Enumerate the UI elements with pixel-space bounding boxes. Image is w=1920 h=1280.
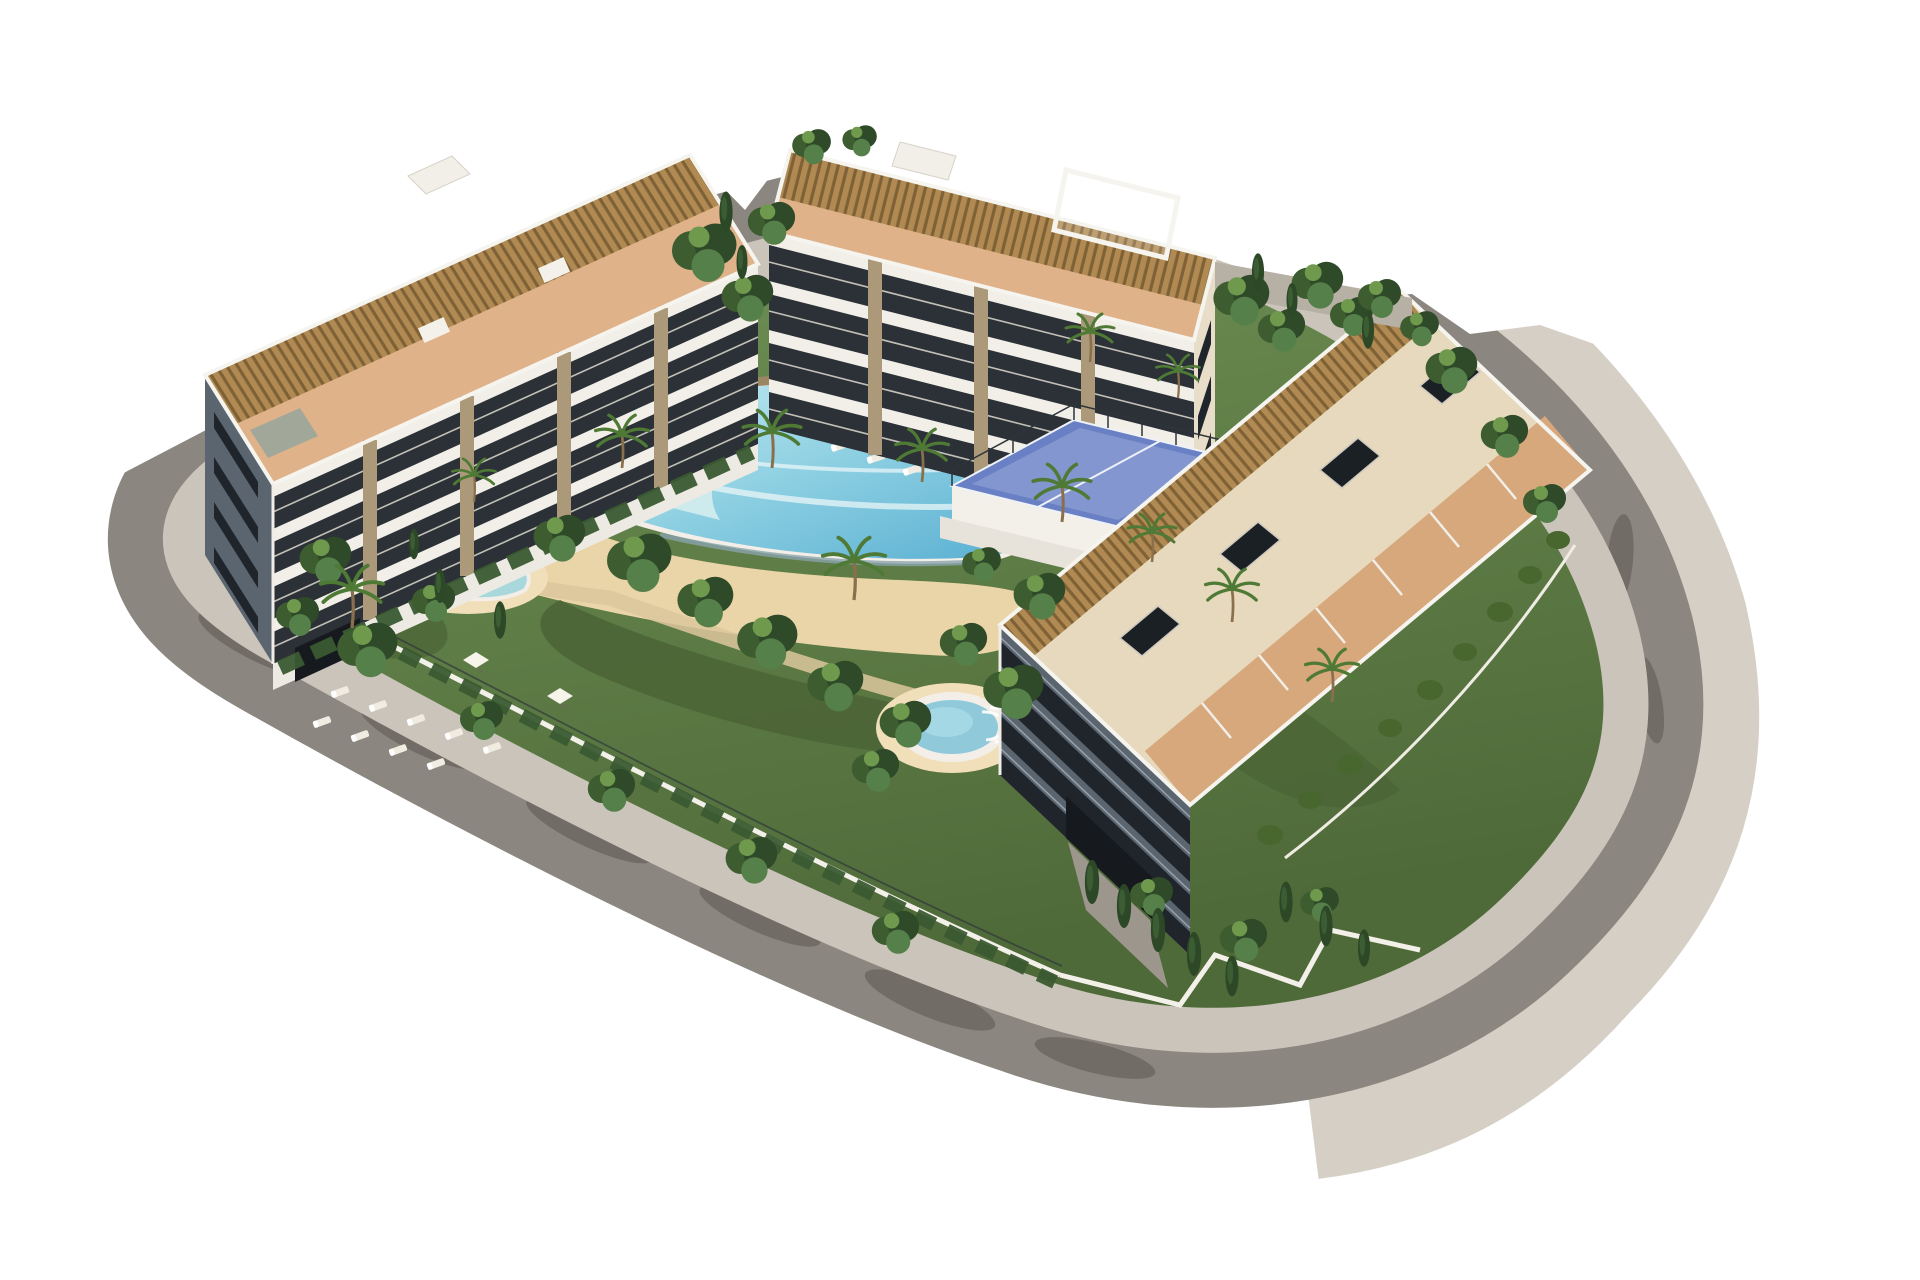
cypress <box>1117 884 1131 928</box>
cypress <box>1319 906 1332 947</box>
cypress <box>1287 283 1298 317</box>
render-canvas <box>0 0 1920 1280</box>
cypress <box>1187 932 1201 976</box>
cypress <box>494 601 506 638</box>
cypress <box>1085 860 1099 904</box>
architectural-rendering <box>0 0 1920 1280</box>
cypress <box>737 245 748 279</box>
cypress <box>719 192 732 233</box>
cypress <box>1151 908 1165 952</box>
cypress <box>1225 956 1238 997</box>
cypress <box>1362 311 1374 348</box>
cypress <box>1358 929 1370 966</box>
cypress <box>1279 882 1292 923</box>
cypress <box>435 569 446 603</box>
cypress <box>1252 253 1264 290</box>
cypress <box>409 529 419 560</box>
